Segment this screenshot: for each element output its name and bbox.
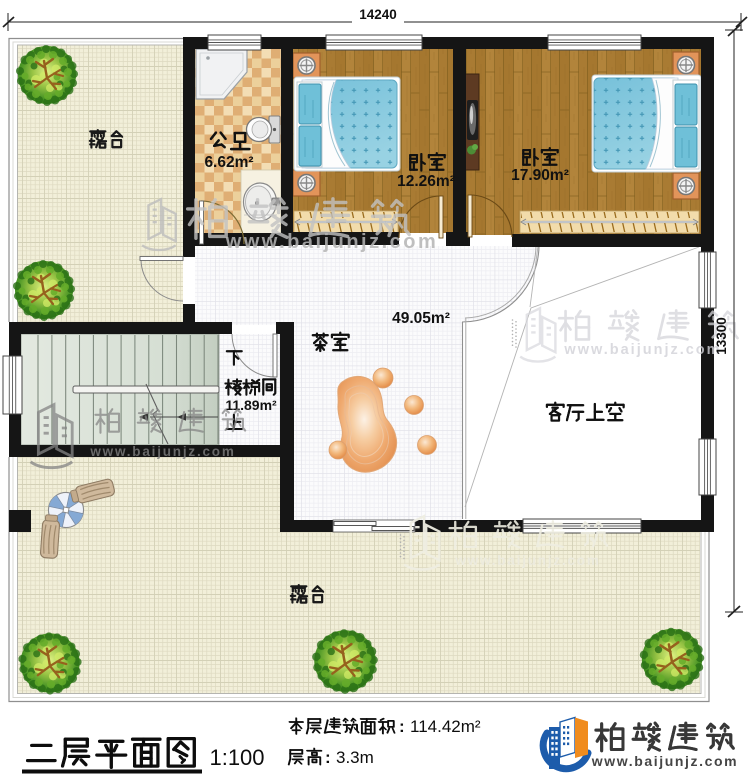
svg-text:www.baijunjz.com: www.baijunjz.com xyxy=(89,444,235,459)
svg-text:114.42m²: 114.42m² xyxy=(410,717,481,736)
svg-text:www.baijunjz.com: www.baijunjz.com xyxy=(591,753,738,769)
svg-text:www.baijunjz.com: www.baijunjz.com xyxy=(225,231,439,253)
svg-text:11.89m²: 11.89m² xyxy=(225,397,277,413)
svg-text:14240: 14240 xyxy=(359,7,397,22)
svg-text:17.90m²: 17.90m² xyxy=(511,167,569,184)
svg-text:3.3m: 3.3m xyxy=(336,748,374,767)
svg-text:www.baijunjz.com: www.baijunjz.com xyxy=(563,342,721,358)
svg-text:49.05m²: 49.05m² xyxy=(392,310,450,327)
svg-text::: : xyxy=(325,748,331,767)
svg-text:13300: 13300 xyxy=(714,317,729,355)
svg-text:1:100: 1:100 xyxy=(209,745,264,770)
svg-text::: : xyxy=(399,717,405,736)
svg-text:www.baijunjz.com: www.baijunjz.com xyxy=(454,553,600,568)
svg-text:12.26m²: 12.26m² xyxy=(397,173,455,190)
svg-text:6.62m²: 6.62m² xyxy=(204,154,253,171)
